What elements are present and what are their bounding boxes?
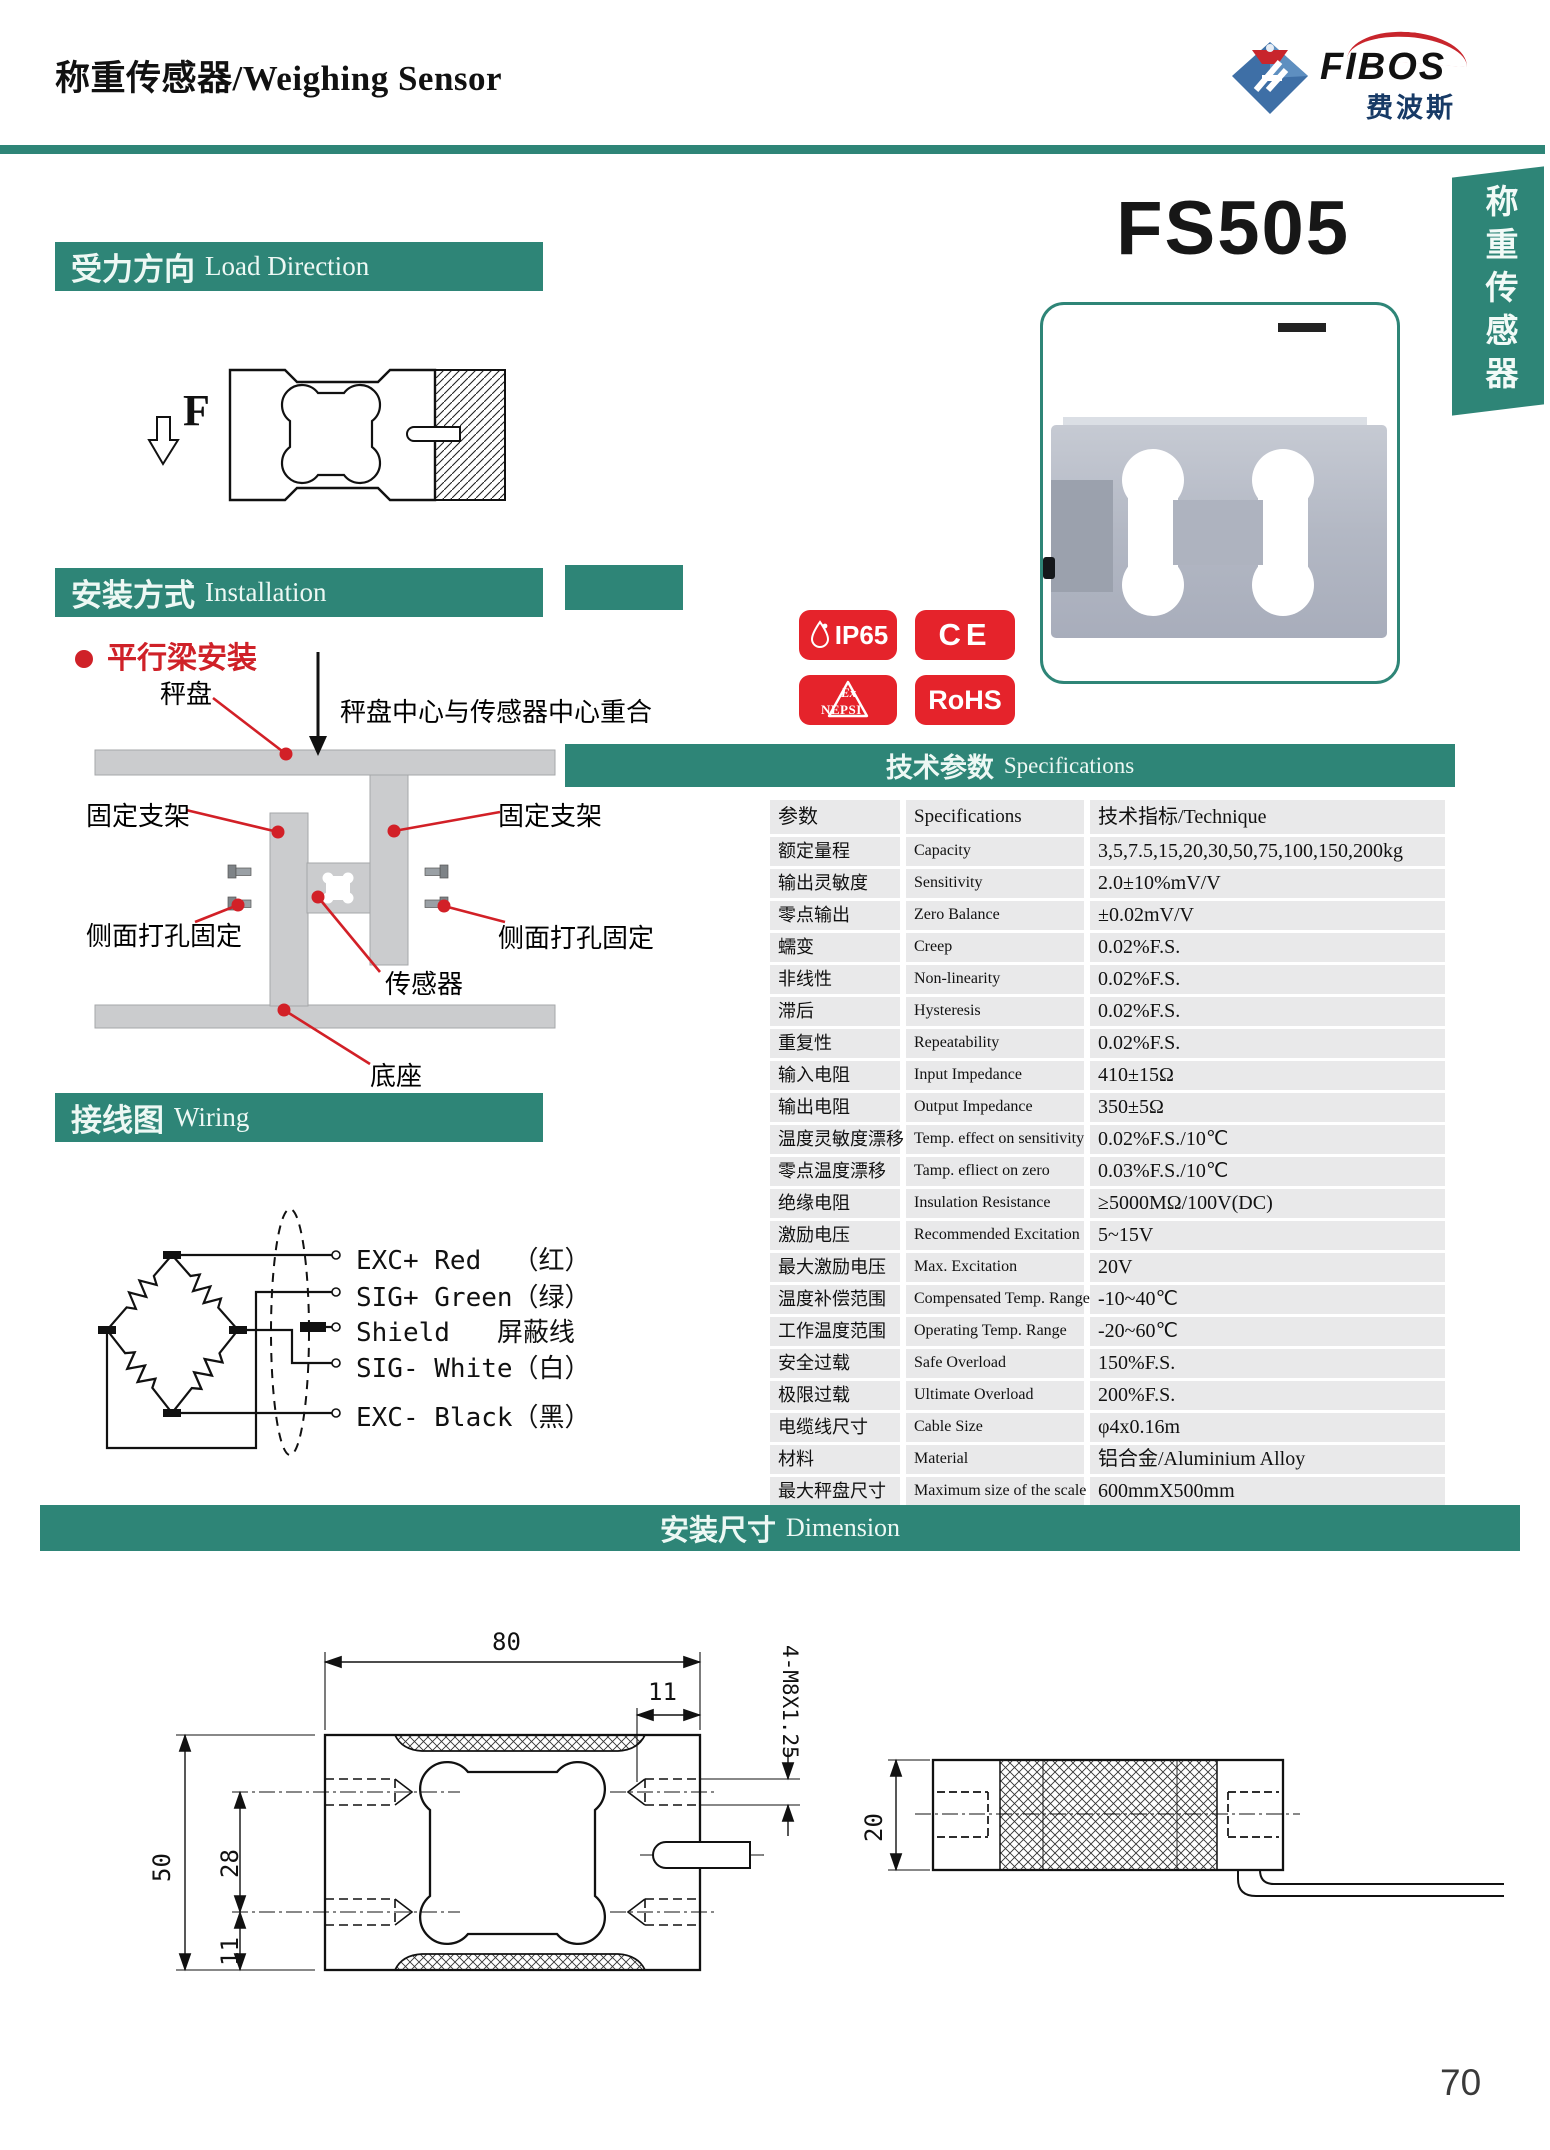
dim-edge-offset: 11 <box>648 1678 677 1706</box>
spec-cell-value: -10~40℃ <box>1090 1285 1445 1314</box>
label-bracket-right: 固定支架 <box>498 796 602 833</box>
spec-cell-value: 0.02%F.S. <box>1090 997 1445 1026</box>
spec-header-zh: 参数 <box>770 800 900 834</box>
section-title-en: Specifications <box>1004 753 1134 779</box>
spec-cell-zh: 蠕变 <box>770 933 900 962</box>
spec-cell-zh: 极限过载 <box>770 1381 900 1410</box>
spec-cell-zh: 温度补偿范围 <box>770 1285 900 1314</box>
dim-hole-offset: 11 <box>216 1937 244 1966</box>
spec-cell-value: 410±15Ω <box>1090 1061 1445 1090</box>
spec-table-row: 输入电阻Input Impedance410±15Ω <box>770 1061 1445 1090</box>
label-sensor: 传感器 <box>385 964 463 1001</box>
spec-cell-en: Creep <box>906 933 1084 962</box>
spec-table-row: 工作温度范围Operating Temp. Range-20~60℃ <box>770 1317 1445 1346</box>
spec-table-row: 温度补偿范围Compensated Temp. Range-10~40℃ <box>770 1285 1445 1314</box>
spec-cell-value: 0.03%F.S./10℃ <box>1090 1157 1445 1186</box>
spec-cell-en: Hysteresis <box>906 997 1084 1026</box>
brand-logo: FIBOS 费波斯 <box>1228 30 1508 122</box>
section-dimension: 安装尺寸 Dimension <box>40 1505 1520 1551</box>
spec-cell-zh: 最大激励电压 <box>770 1253 900 1282</box>
badge-rohs-label: RoHS <box>928 685 1002 716</box>
spec-table-row: 最大秤盘尺寸Maximum size of the scale600mmX500… <box>770 1477 1445 1506</box>
cable-line <box>1238 1870 1504 1896</box>
label-center-note: 秤盘中心与传感器中心重合 <box>340 692 652 729</box>
spec-cell-en: Compensated Temp. Range <box>906 1285 1084 1314</box>
spec-cell-en: Output Impedance <box>906 1093 1084 1122</box>
label-side-fix-left: 侧面打孔固定 <box>86 916 242 953</box>
section-title-en: Wiring <box>174 1102 249 1133</box>
fibos-logo-icon <box>1228 34 1312 118</box>
spec-cell-en: Insulation Resistance <box>906 1189 1084 1218</box>
spec-table-row: 输出电阻Output Impedance350±5Ω <box>770 1093 1445 1122</box>
terminals <box>332 1251 340 1417</box>
spec-cell-value: 0.02%F.S. <box>1090 1029 1445 1058</box>
model-number: FS505 <box>1060 185 1350 272</box>
force-arrow-icon <box>149 417 178 464</box>
wire-label-sig-plus: SIG+ Green（绿） <box>356 1277 591 1314</box>
spec-cell-en: Recommended Excitation <box>906 1221 1084 1250</box>
dim-thread: 4-M8X1.25 <box>778 1645 802 1759</box>
spec-cell-zh: 材料 <box>770 1445 900 1474</box>
spec-cell-zh: 最大秤盘尺寸 <box>770 1477 900 1506</box>
photo-dash <box>1278 323 1326 332</box>
spec-cell-value: 150%F.S. <box>1090 1349 1445 1378</box>
section-installation: 安装方式 Installation <box>55 568 543 617</box>
spec-table-row: 零点输出Zero Balance±0.02mV/V <box>770 901 1445 930</box>
spec-cell-value: 350±5Ω <box>1090 1093 1445 1122</box>
spec-table-row: 温度灵敏度漂移Temp. effect on sensitivity0.02%F… <box>770 1125 1445 1154</box>
section-title-en: Installation <box>205 577 326 608</box>
spec-cell-en: Cable Size <box>906 1413 1084 1442</box>
dimension-drawing-top <box>140 1620 840 2020</box>
spec-header-en: Specifications <box>906 800 1084 834</box>
dim-height: 50 <box>148 1853 176 1882</box>
badge-rohs: RoHS <box>915 675 1015 725</box>
badge-ce: CE <box>915 610 1015 660</box>
spec-cell-zh: 温度灵敏度漂移 <box>770 1125 900 1154</box>
badge-ex-nepsi: Ex NEPSI <box>799 675 897 725</box>
spec-cell-en: Zero Balance <box>906 901 1084 930</box>
wire-label-exc-minus: EXC- Black（黑） <box>356 1397 591 1434</box>
spec-cell-zh: 非线性 <box>770 965 900 994</box>
shield-bar <box>300 1322 326 1332</box>
spec-cell-en: Non-linearity <box>906 965 1084 994</box>
spec-cell-en: Operating Temp. Range <box>906 1317 1084 1346</box>
product-photo <box>1040 302 1400 684</box>
spec-cell-value: 2.0±10%mV/V <box>1090 869 1445 898</box>
spec-cell-zh: 输出电阻 <box>770 1093 900 1122</box>
spec-cell-en: Max. Excitation <box>906 1253 1084 1282</box>
badge-ex-label: Ex <box>841 685 856 701</box>
spec-cell-zh: 绝缘电阻 <box>770 1189 900 1218</box>
water-drop-icon <box>808 619 832 651</box>
spec-table-row: 安全过载Safe Overload150%F.S. <box>770 1349 1445 1378</box>
header-divider <box>0 145 1545 154</box>
page-number: 70 <box>1440 2062 1481 2104</box>
spec-table-row: 非线性Non-linearity0.02%F.S. <box>770 965 1445 994</box>
wire-label-sig-minus: SIG- White（白） <box>356 1348 591 1385</box>
spec-table-row: 极限过载Ultimate Overload200%F.S. <box>770 1381 1445 1410</box>
section-title-zh: 接线图 <box>71 1095 164 1140</box>
spec-cell-en: Safe Overload <box>906 1349 1084 1378</box>
spec-cell-en: Tamp. efliect on zero <box>906 1157 1084 1186</box>
spec-cell-zh: 输出灵敏度 <box>770 869 900 898</box>
deco-block <box>565 565 683 610</box>
section-title-en: Dimension <box>786 1513 900 1543</box>
spec-cell-value: ≥5000MΩ/100V(DC) <box>1090 1189 1445 1218</box>
side-tab-label: 称重传感器 <box>1474 184 1522 399</box>
spec-cell-value: -20~60℃ <box>1090 1317 1445 1346</box>
spec-cell-zh: 激励电压 <box>770 1221 900 1250</box>
brand-name-zh: 费波斯 <box>1366 86 1456 125</box>
brand-name: FIBOS <box>1320 46 1446 89</box>
section-specifications: 技术参数 Specifications <box>565 744 1455 787</box>
spec-cell-value: 5~15V <box>1090 1221 1445 1250</box>
spec-cell-en: Sensitivity <box>906 869 1084 898</box>
spec-cell-value: 200%F.S. <box>1090 1381 1445 1410</box>
label-bracket-left: 固定支架 <box>86 796 190 833</box>
section-title-zh: 安装方式 <box>71 570 195 615</box>
spec-cell-en: Ultimate Overload <box>906 1381 1084 1410</box>
section-wiring: 接线图 Wiring <box>55 1093 543 1142</box>
spec-cell-value: 0.02%F.S. <box>1090 965 1445 994</box>
dim-width: 80 <box>492 1628 521 1656</box>
spec-cell-zh: 滞后 <box>770 997 900 1026</box>
spec-cell-zh: 零点输出 <box>770 901 900 930</box>
spec-table-row: 最大激励电压Max. Excitation20V <box>770 1253 1445 1282</box>
spec-cell-value: 0.02%F.S. <box>1090 933 1445 962</box>
spec-cell-en: Capacity <box>906 837 1084 866</box>
spec-cell-zh: 工作温度范围 <box>770 1317 900 1346</box>
spec-table-row: 额定量程Capacity3,5,7.5,15,20,30,50,75,100,1… <box>770 837 1445 866</box>
wire-label-exc-plus: EXC+ Red （红） <box>356 1240 591 1277</box>
section-title-zh: 安装尺寸 <box>660 1507 776 1549</box>
spec-table-row: 滞后Hysteresis0.02%F.S. <box>770 997 1445 1026</box>
dimension-drawing-side <box>830 1745 1520 1930</box>
spec-cell-zh: 安全过载 <box>770 1349 900 1378</box>
badge-nepsi-label: NEPSI <box>821 702 862 718</box>
spec-cell-zh: 额定量程 <box>770 837 900 866</box>
spec-table-row: 输出灵敏度Sensitivity2.0±10%mV/V <box>770 869 1445 898</box>
spec-cell-en: Repeatability <box>906 1029 1084 1058</box>
spec-cell-en: Temp. effect on sensitivity <box>906 1125 1084 1154</box>
label-pan: 秤盘 <box>160 674 212 711</box>
spec-cell-zh: 电缆线尺寸 <box>770 1413 900 1442</box>
badge-ip65: IP65 <box>799 610 897 660</box>
spec-table-row: 电缆线尺寸Cable Sizeφ4x0.16m <box>770 1413 1445 1442</box>
spec-table-row: 重复性Repeatability0.02%F.S. <box>770 1029 1445 1058</box>
badge-ip65-label: IP65 <box>835 620 889 651</box>
spec-header-value: 技术指标/Technique <box>1090 800 1445 834</box>
wire-label-shield: Shield 屏蔽线 <box>356 1312 575 1349</box>
page-title: 称重传感器/Weighing Sensor <box>55 50 502 101</box>
spec-table-header: 参数 Specifications 技术指标/Technique <box>770 800 1445 834</box>
load-direction-diagram <box>60 330 520 530</box>
spec-cell-zh: 零点温度漂移 <box>770 1157 900 1186</box>
spec-table-row: 绝缘电阻Insulation Resistance≥5000MΩ/100V(DC… <box>770 1189 1445 1218</box>
force-label: F <box>183 385 210 436</box>
spec-cell-zh: 重复性 <box>770 1029 900 1058</box>
datasheet-page: 称重传感器/Weighing Sensor FIBOS 费波斯 FS505 称重… <box>0 0 1550 2150</box>
spec-table-row: 蠕变Creep0.02%F.S. <box>770 933 1445 962</box>
spec-table-row: 激励电压Recommended Excitation5~15V <box>770 1221 1445 1250</box>
section-load-direction: 受力方向 Load Direction <box>55 242 543 291</box>
side-tab: 称重传感器 <box>1452 166 1544 415</box>
spec-table-row: 零点温度漂移Tamp. efliect on zero0.03%F.S./10℃ <box>770 1157 1445 1186</box>
section-title-en: Load Direction <box>205 251 369 282</box>
label-base: 底座 <box>370 1056 422 1093</box>
spec-cell-value: φ4x0.16m <box>1090 1413 1445 1442</box>
spec-cell-value: 铝合金/Aluminium Alloy <box>1090 1445 1445 1474</box>
section-title-zh: 受力方向 <box>71 244 195 289</box>
spec-cell-en: Maximum size of the scale <box>906 1477 1084 1506</box>
spec-cell-zh: 输入电阻 <box>770 1061 900 1090</box>
dim-thickness: 20 <box>860 1813 888 1842</box>
label-side-fix-right: 侧面打孔固定 <box>498 918 654 955</box>
spec-cell-en: Input Impedance <box>906 1061 1084 1090</box>
spec-table-row: 材料Material铝合金/Aluminium Alloy <box>770 1445 1445 1474</box>
spec-cell-value: 20V <box>1090 1253 1445 1282</box>
badge-ce-label: CE <box>938 617 991 653</box>
spec-cell-value: 600mmX500mm <box>1090 1477 1445 1506</box>
spec-cell-en: Material <box>906 1445 1084 1474</box>
cable-nub <box>1043 557 1055 579</box>
spec-cell-value: 0.02%F.S./10℃ <box>1090 1125 1445 1154</box>
dim-hole-span: 28 <box>216 1849 244 1878</box>
spec-table: 参数 Specifications 技术指标/Technique 额定量程Cap… <box>770 800 1445 1509</box>
section-title-zh: 技术参数 <box>886 746 994 785</box>
spec-cell-value: ±0.02mV/V <box>1090 901 1445 930</box>
spec-cell-value: 3,5,7.5,15,20,30,50,75,100,150,200kg <box>1090 837 1445 866</box>
